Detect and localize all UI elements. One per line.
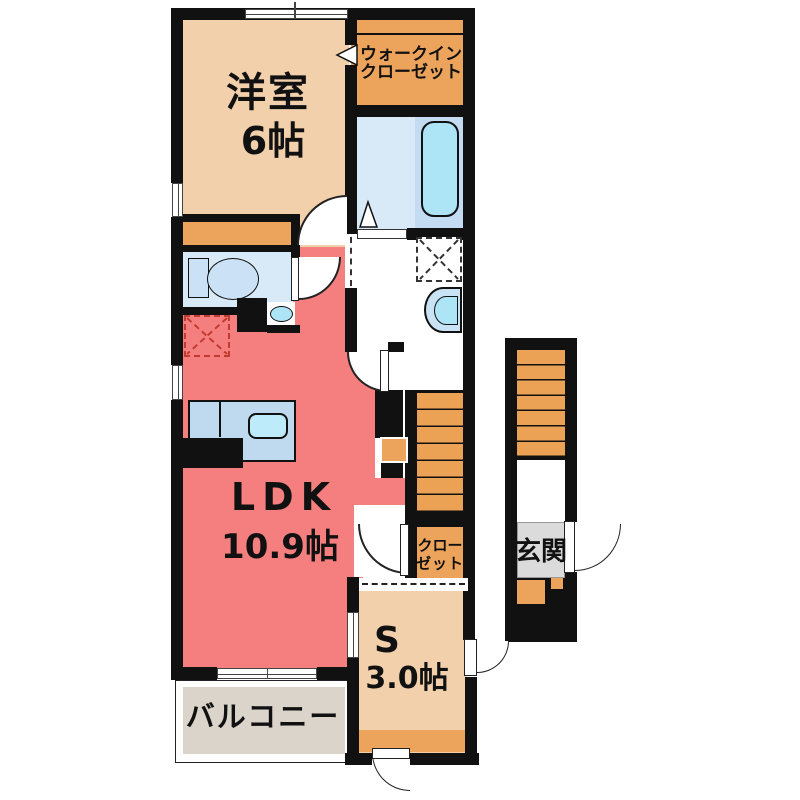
kitchen-divider <box>219 401 221 437</box>
stair-landing <box>386 345 463 392</box>
wall <box>405 515 475 527</box>
internal-staircase <box>417 393 463 515</box>
washroom-partition-dash <box>350 237 352 286</box>
label-ldk: LDK <box>231 478 337 516</box>
wall <box>347 577 359 612</box>
window-western-left <box>172 183 183 217</box>
kitchen-sink-fixture <box>248 413 288 439</box>
wic-shelf-line <box>351 33 463 35</box>
floor-plan: 洋室 6帖 ウォークイン クローゼット LDK 10.9帖 クロー ゼット 玄関… <box>0 0 800 800</box>
genkan-step-large <box>517 580 545 604</box>
label-service: S <box>374 623 400 659</box>
small-basin-fixture <box>270 306 293 322</box>
western-closet-strip <box>183 222 295 245</box>
label-wic-line2: クローゼット <box>360 65 462 82</box>
label-genkan: 玄関 <box>515 539 567 565</box>
door-arc-genkan <box>575 524 621 571</box>
washing-machine-area <box>416 237 462 282</box>
label-ldk-size: 10.9帖 <box>221 530 339 564</box>
refrigerator-area <box>184 315 230 357</box>
door-leaf-washroom <box>380 350 389 392</box>
label-closet-line1: クロー <box>417 539 462 554</box>
wall <box>183 245 300 252</box>
door-leaf-service <box>400 524 409 576</box>
wall <box>183 214 300 222</box>
window-western-top <box>245 9 348 19</box>
window-service-left <box>347 612 359 658</box>
toilet-fixture <box>207 258 259 300</box>
wall <box>183 307 237 315</box>
wall <box>345 105 475 117</box>
label-western-room: 洋室 <box>226 73 310 113</box>
room-ldk-ext-c <box>352 478 408 505</box>
label-wic-line1: ウォークイン <box>360 47 462 64</box>
wall <box>237 298 267 332</box>
wall <box>345 288 357 352</box>
window-ldk-left <box>172 365 183 400</box>
entrance-staircase <box>517 350 565 460</box>
kitchen-wall-block <box>177 438 243 468</box>
stair-landing-step <box>380 437 408 463</box>
wall <box>505 338 517 642</box>
label-service-size: 3.0帖 <box>365 664 448 694</box>
wall <box>345 753 372 765</box>
wall <box>375 390 403 438</box>
wall <box>465 677 477 765</box>
bathroom-threshold <box>357 229 407 239</box>
door-leaf-service-side <box>464 639 477 676</box>
label-balcony: バルコニー <box>186 703 340 732</box>
window-mullion-tick <box>294 2 296 18</box>
wall <box>388 342 404 352</box>
wall <box>410 753 479 765</box>
wall <box>505 338 577 350</box>
genkan-step-small <box>551 578 563 589</box>
bathtub-fixture <box>421 121 459 217</box>
internal-stair-top-line <box>417 390 463 393</box>
wall <box>171 217 183 365</box>
wall <box>171 8 183 183</box>
room-ldk-ext-b <box>352 392 375 478</box>
bathroom-floor <box>351 111 415 234</box>
wall <box>463 8 475 640</box>
wall <box>565 338 577 522</box>
wall <box>171 667 217 680</box>
door-leaf-service-bottom <box>372 748 410 759</box>
vanity-basin-bowl <box>434 296 458 325</box>
toilet-tank <box>188 258 209 298</box>
closet-front-dash <box>362 583 465 585</box>
door-arc-service-side <box>477 641 509 673</box>
wall <box>317 667 359 680</box>
door-leaf-toilet <box>291 257 299 301</box>
window-balcony-sliding <box>217 668 317 679</box>
label-closet-line2: ゼット <box>416 557 464 572</box>
wall <box>505 630 577 642</box>
wall <box>267 325 300 333</box>
wall <box>381 462 403 478</box>
label-western-size: 6帖 <box>241 122 305 160</box>
